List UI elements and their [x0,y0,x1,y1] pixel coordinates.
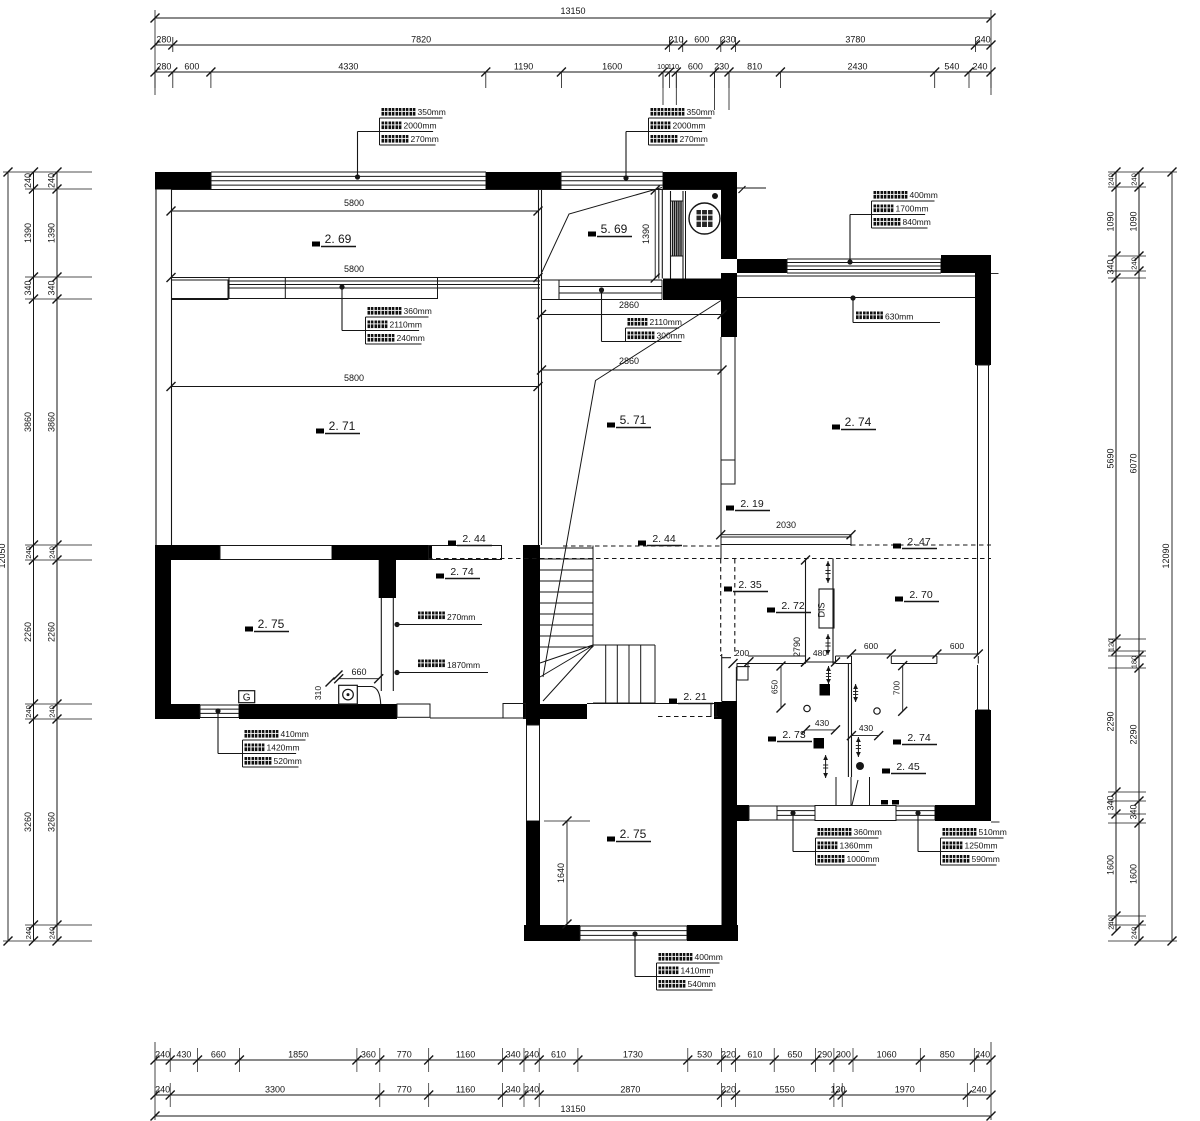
svg-text:2000mm: 2000mm [404,121,437,131]
svg-text:240: 240 [24,705,33,718]
svg-text:2260: 2260 [23,622,33,642]
svg-text:1420mm: 1420mm [267,743,300,753]
svg-text:610: 610 [747,1050,762,1060]
svg-text:1190: 1190 [514,62,533,72]
svg-text:1360mm: 1360mm [840,841,873,851]
svg-text:1390: 1390 [641,224,651,244]
svg-text:650: 650 [787,1050,802,1060]
svg-text:430: 430 [176,1050,191,1060]
svg-text:430: 430 [815,718,829,728]
svg-text:2110mm: 2110mm [650,317,682,327]
svg-text:240: 240 [48,546,57,559]
svg-text:1410mm: 1410mm [681,966,714,976]
svg-text:5. 71: 5. 71 [620,413,647,427]
svg-text:1090: 1090 [1129,211,1139,231]
svg-text:180: 180 [1130,656,1139,669]
svg-text:600: 600 [864,641,878,651]
svg-text:340: 340 [506,1050,521,1060]
svg-text:2. 75: 2. 75 [258,617,285,631]
svg-text:310: 310 [313,686,323,700]
svg-text:240: 240 [1130,927,1139,940]
svg-text:3260: 3260 [23,812,33,832]
svg-text:350mm: 350mm [687,107,715,117]
svg-text:6070: 6070 [1129,453,1139,473]
svg-text:200: 200 [735,648,749,658]
svg-text:510mm: 510mm [979,827,1007,837]
svg-text:1060: 1060 [877,1050,897,1060]
svg-text:2860: 2860 [619,300,639,310]
svg-text:240: 240 [524,1085,539,1095]
svg-text:610: 610 [551,1050,566,1060]
svg-text:2. 74: 2. 74 [907,732,931,744]
svg-text:340: 340 [23,280,33,295]
svg-text:850: 850 [940,1050,955,1060]
svg-text:2. 21: 2. 21 [683,691,707,703]
svg-text:1600: 1600 [602,62,622,72]
svg-text:240: 240 [48,705,57,718]
svg-text:1250mm: 1250mm [965,841,998,851]
svg-text:240: 240 [155,1085,170,1095]
svg-text:240: 240 [47,173,57,188]
svg-text:270mm: 270mm [680,134,708,144]
svg-text:540mm: 540mm [688,979,716,989]
svg-text:2030: 2030 [776,520,796,530]
svg-text:12050: 12050 [0,543,7,568]
svg-text:120: 120 [1107,639,1116,652]
svg-text:270mm: 270mm [411,134,439,144]
svg-text:300: 300 [836,1050,851,1060]
svg-text:2. 35: 2. 35 [738,579,762,591]
svg-text:3260: 3260 [47,812,57,832]
svg-text:2. 72: 2. 72 [781,600,805,612]
svg-text:3860: 3860 [47,412,57,432]
svg-text:480: 480 [813,648,827,658]
svg-text:540: 540 [944,62,959,72]
svg-text:240: 240 [23,173,33,188]
svg-text:240: 240 [1130,257,1139,270]
svg-text:3300: 3300 [265,1085,285,1095]
svg-text:270mm: 270mm [447,612,475,622]
svg-text:240: 240 [975,1050,990,1060]
svg-text:2. 44: 2. 44 [462,533,486,545]
svg-text:240: 240 [1130,173,1139,186]
svg-text:290: 290 [817,1050,832,1060]
svg-text:2860: 2860 [619,356,639,366]
svg-text:13150: 13150 [560,6,585,16]
svg-text:2000mm: 2000mm [673,121,706,131]
svg-text:220: 220 [721,1085,736,1095]
svg-text:1730: 1730 [623,1050,643,1060]
svg-text:12090: 12090 [1161,543,1171,568]
svg-text:2790: 2790 [792,637,802,657]
svg-text:2290: 2290 [1129,724,1139,744]
svg-text:2. 70: 2. 70 [909,589,933,601]
svg-text:1550: 1550 [775,1085,795,1095]
svg-text:340: 340 [506,1085,521,1095]
svg-text:2. 47: 2. 47 [907,536,931,548]
svg-text:2. 74: 2. 74 [845,415,872,429]
svg-text:600: 600 [694,35,709,45]
svg-text:770: 770 [397,1050,412,1060]
svg-text:240: 240 [24,546,33,559]
svg-text:770: 770 [397,1085,412,1095]
svg-text:240: 240 [524,1050,539,1060]
svg-text:340: 340 [47,280,57,295]
svg-text:220: 220 [721,1050,736,1060]
svg-text:340: 340 [1106,259,1116,274]
svg-text:2260: 2260 [47,622,57,642]
svg-text:2. 45: 2. 45 [896,761,920,773]
svg-text:660: 660 [211,1050,226,1060]
svg-text:520mm: 520mm [274,756,302,766]
svg-text:600: 600 [184,62,199,72]
svg-text:210: 210 [669,35,684,45]
svg-text:3780: 3780 [845,35,865,45]
svg-text:840mm: 840mm [903,217,931,227]
svg-text:650: 650 [770,680,780,694]
svg-text:2. 44: 2. 44 [652,533,676,545]
svg-text:300mm: 300mm [657,331,685,341]
svg-text:1160: 1160 [456,1085,475,1095]
svg-text:400mm: 400mm [910,190,938,200]
svg-text:1390: 1390 [47,223,57,243]
svg-text:430: 430 [859,723,873,733]
svg-text:230: 230 [721,35,736,45]
svg-text:2. 71: 2. 71 [329,419,356,433]
svg-text:700: 700 [892,681,902,695]
svg-text:240: 240 [155,1050,170,1060]
svg-text:G: G [243,692,251,703]
svg-text:1700mm: 1700mm [896,204,929,214]
svg-text:630mm: 630mm [885,312,913,322]
svg-text:3860: 3860 [23,412,33,432]
svg-text:1600: 1600 [1129,864,1139,884]
svg-text:2. 75: 2. 75 [620,827,647,841]
svg-text:2. 69: 2. 69 [325,232,352,246]
svg-text:2. 73: 2. 73 [782,729,806,741]
svg-text:5690: 5690 [1106,448,1116,468]
svg-text:240: 240 [972,1085,987,1095]
svg-text:1000mm: 1000mm [847,854,880,864]
svg-text:1850: 1850 [288,1050,308,1060]
svg-text:600: 600 [950,641,964,651]
svg-text:1640: 1640 [556,863,566,883]
svg-text:2290: 2290 [1106,711,1116,731]
svg-text:1970: 1970 [895,1085,915,1095]
svg-text:2870: 2870 [620,1085,640,1095]
svg-text:2430: 2430 [848,62,868,72]
svg-text:360mm: 360mm [854,827,882,837]
svg-text:7820: 7820 [411,35,431,45]
svg-text:350mm: 350mm [418,107,446,117]
svg-text:340: 340 [1129,804,1139,819]
svg-text:240: 240 [1107,173,1116,186]
svg-text:230: 230 [714,62,729,72]
svg-text:240: 240 [976,35,991,45]
svg-text:360mm: 360mm [404,306,432,316]
svg-text:240: 240 [1107,917,1116,930]
svg-text:1160: 1160 [456,1050,475,1060]
svg-text:5. 69: 5. 69 [601,222,628,236]
svg-text:13150: 13150 [560,1104,585,1114]
svg-text:240: 240 [24,927,33,940]
svg-text:240: 240 [972,62,987,72]
svg-text:1870mm: 1870mm [447,660,480,670]
svg-text:410mm: 410mm [281,729,309,739]
svg-text:360: 360 [361,1050,376,1060]
svg-text:810: 810 [747,62,762,72]
svg-text:2110mm: 2110mm [390,320,422,330]
svg-text:600: 600 [688,62,703,72]
svg-text:1090: 1090 [1106,211,1116,231]
svg-text:1600: 1600 [1106,855,1116,875]
svg-text:590mm: 590mm [972,854,1000,864]
svg-text:4330: 4330 [338,62,358,72]
svg-text:5800: 5800 [344,198,364,208]
svg-text:5800: 5800 [344,264,364,274]
svg-text:280: 280 [156,35,171,45]
svg-text:660: 660 [351,667,366,677]
svg-text:340: 340 [1106,795,1116,810]
svg-text:240: 240 [48,927,57,940]
svg-text:280: 280 [156,62,171,72]
svg-text:2. 19: 2. 19 [740,498,764,510]
svg-text:1390: 1390 [23,223,33,243]
svg-text:5800: 5800 [344,373,364,383]
svg-text:240mm: 240mm [397,333,425,343]
svg-text:130: 130 [831,1085,846,1095]
svg-text:DIS: DIS [817,602,827,617]
svg-text:2. 74: 2. 74 [450,566,474,578]
svg-text:530: 530 [697,1050,712,1060]
svg-text:400mm: 400mm [695,952,723,962]
svg-text:110: 110 [668,64,679,71]
